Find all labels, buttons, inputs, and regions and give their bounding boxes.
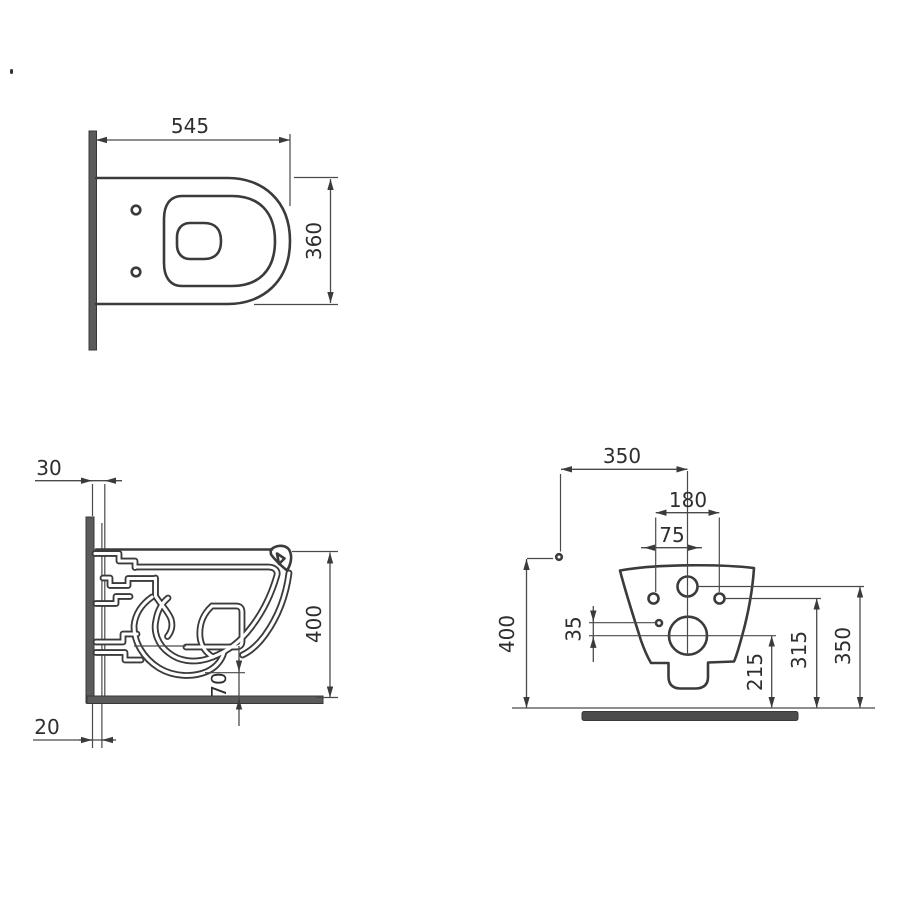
rim-nose-detail (277, 554, 285, 565)
dim-label-rear-400: 400 (495, 615, 519, 653)
floor-section-side-view (87, 696, 323, 704)
dimension-outlet-height-215: 215 (743, 636, 772, 708)
dim-label-75: 75 (659, 523, 684, 547)
dimension-inlet-height-350: 350 (831, 587, 860, 709)
dimension-width-545: 545 (96, 114, 290, 206)
top-view: 545 360 (89, 114, 338, 350)
rear-view: 350 180 75 400 35 (495, 444, 875, 721)
dimension-bolt-height-315: 315 (787, 599, 817, 709)
wall-section-top-view (89, 131, 97, 350)
small-reference-hole (656, 620, 662, 626)
dim-label-70: 70 (207, 672, 231, 697)
dim-label-545: 545 (171, 114, 209, 138)
wall-section-side-view (86, 517, 94, 703)
dim-label-215: 215 (743, 653, 767, 691)
fixing-bolt-hole-right (715, 594, 725, 604)
seat-rim-outline (164, 196, 275, 286)
dim-label-350-top: 350 (603, 444, 641, 468)
technical-drawing: 545 360 (0, 0, 900, 900)
dim-label-315: 315 (787, 631, 811, 669)
dim-label-20: 20 (34, 715, 59, 739)
ceramic-section-strokes (95, 554, 289, 676)
dim-label-side-400: 400 (302, 605, 326, 643)
fixing-bolt-hole-left (649, 594, 659, 604)
drawing-canvas: 545 360 (0, 0, 900, 900)
wall-reference-point (556, 554, 562, 560)
dimension-wall-to-axis-350: 350 (561, 444, 688, 469)
seat-hinge-hole-upper (132, 206, 141, 215)
seat-hinge-hole-lower (132, 268, 141, 277)
dimension-hole-gap-35: 35 (562, 606, 594, 662)
dimension-wall-gap-20: 20 (33, 715, 116, 740)
dim-label-350-right: 350 (831, 627, 855, 665)
dimension-bolt-to-axis-75: 75 (641, 523, 702, 548)
dim-label-180: 180 (669, 488, 707, 512)
dimension-side-height-400: 400 (292, 552, 338, 698)
dim-label-35: 35 (562, 616, 586, 641)
dimension-rear-height-400: 400 (495, 559, 527, 708)
bowl-opening-outline (177, 223, 221, 259)
dimension-bolt-spacing-180: 180 (656, 488, 720, 513)
dimension-depth-360: 360 (254, 178, 338, 305)
dim-label-360: 360 (302, 222, 326, 260)
dim-label-30: 30 (36, 456, 61, 480)
side-view: 30 20 400 70 (33, 456, 338, 748)
dimension-wall-gap-30: 30 (35, 456, 122, 481)
floor-slab-rear-view (582, 712, 798, 721)
